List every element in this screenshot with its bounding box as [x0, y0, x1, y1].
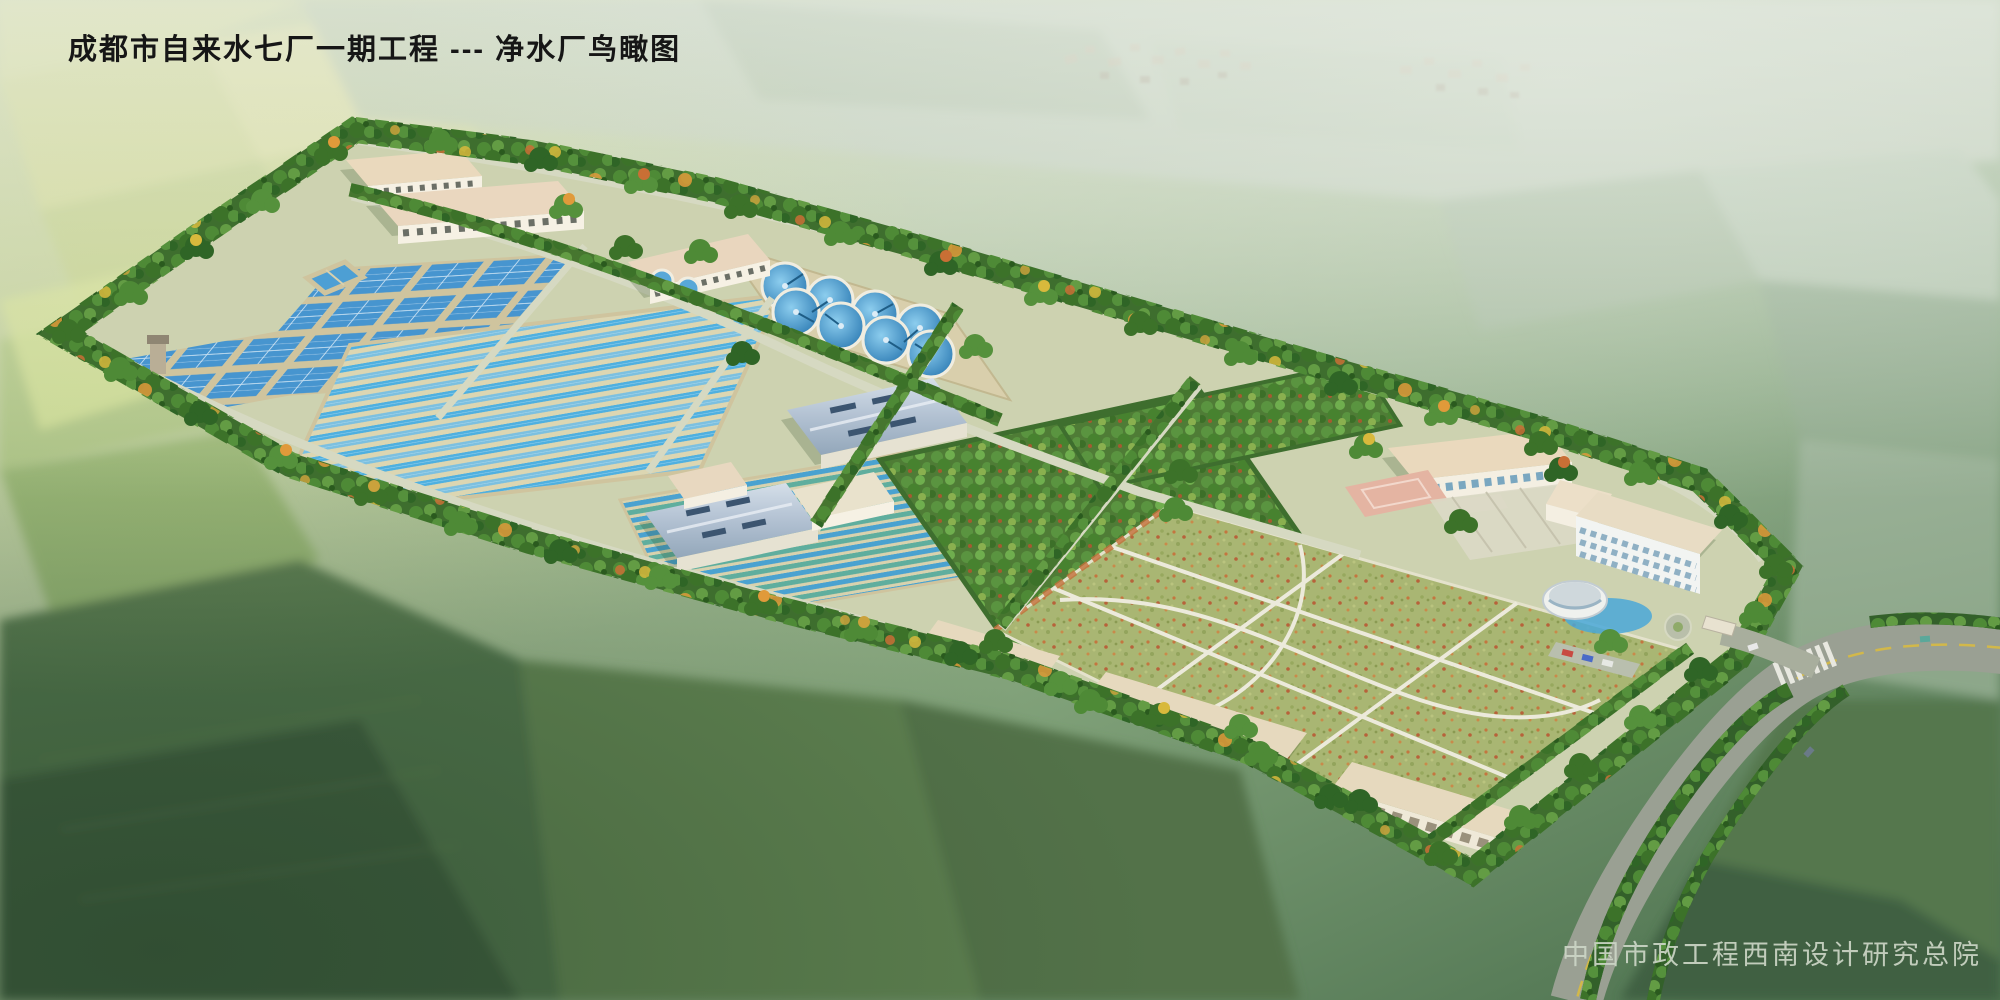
aerial-scene: [0, 0, 2000, 1000]
rendering-canvas: 成都市自来水七厂一期工程 --- 净水厂鸟瞰图 中国市政工程西南设计研究总院: [0, 0, 2000, 1000]
drawing-title: 成都市自来水七厂一期工程 --- 净水厂鸟瞰图: [68, 26, 681, 68]
water-tower: [147, 335, 169, 374]
design-institute-credit: 中国市政工程西南设计研究总院: [1562, 933, 1982, 972]
